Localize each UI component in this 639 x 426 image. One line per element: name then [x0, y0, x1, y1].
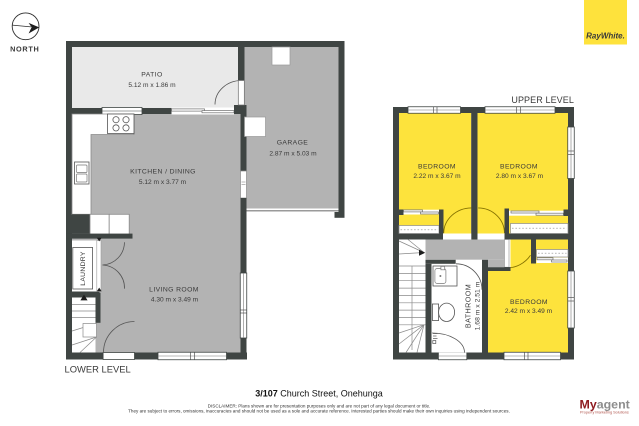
svg-text:2.80 m x 3.67 m: 2.80 m x 3.67 m — [496, 173, 544, 180]
svg-text:They are subject to errors, om: They are subject to errors, omissions, i… — [128, 409, 510, 414]
svg-text:2.42 m x 3.49 m: 2.42 m x 3.49 m — [505, 308, 553, 315]
svg-text:BATHROOM: BATHROOM — [464, 284, 473, 328]
svg-text:2.22 m x 3.67 m: 2.22 m x 3.67 m — [413, 173, 461, 180]
svg-text:BEDROOM: BEDROOM — [418, 164, 456, 171]
svg-text:Property Marketing Solutions: Property Marketing Solutions — [580, 410, 629, 414]
svg-text:BEDROOM: BEDROOM — [500, 164, 538, 171]
svg-text:NORTH: NORTH — [10, 44, 39, 53]
svg-text:PATIO: PATIO — [141, 72, 162, 79]
svg-text:4.30 m x 3.49 m: 4.30 m x 3.49 m — [151, 297, 199, 304]
svg-text:LAUNDRY: LAUNDRY — [80, 251, 87, 286]
svg-text:2.87 m x 5.03 m: 2.87 m x 5.03 m — [269, 151, 317, 158]
svg-text:LOWER LEVEL: LOWER LEVEL — [65, 364, 131, 375]
svg-text:GARAGE: GARAGE — [277, 140, 309, 147]
svg-text:BEDROOM: BEDROOM — [510, 299, 548, 306]
svg-text:1.68 m x 2.51 m: 1.68 m x 2.51 m — [475, 281, 482, 330]
svg-text:UPPER LEVEL: UPPER LEVEL — [511, 95, 574, 105]
svg-text:5.12 m x 3.77 m: 5.12 m x 3.77 m — [139, 179, 187, 186]
svg-text:5.12 m x 1.86 m: 5.12 m x 1.86 m — [128, 82, 176, 89]
svg-text:KITCHEN / DINING: KITCHEN / DINING — [130, 169, 196, 176]
svg-text:LIVING ROOM: LIVING ROOM — [149, 287, 199, 294]
svg-text:RayWhite.: RayWhite. — [586, 31, 625, 40]
svg-text:3/107 Church Street, Onehunga: 3/107 Church Street, Onehunga — [255, 389, 383, 399]
